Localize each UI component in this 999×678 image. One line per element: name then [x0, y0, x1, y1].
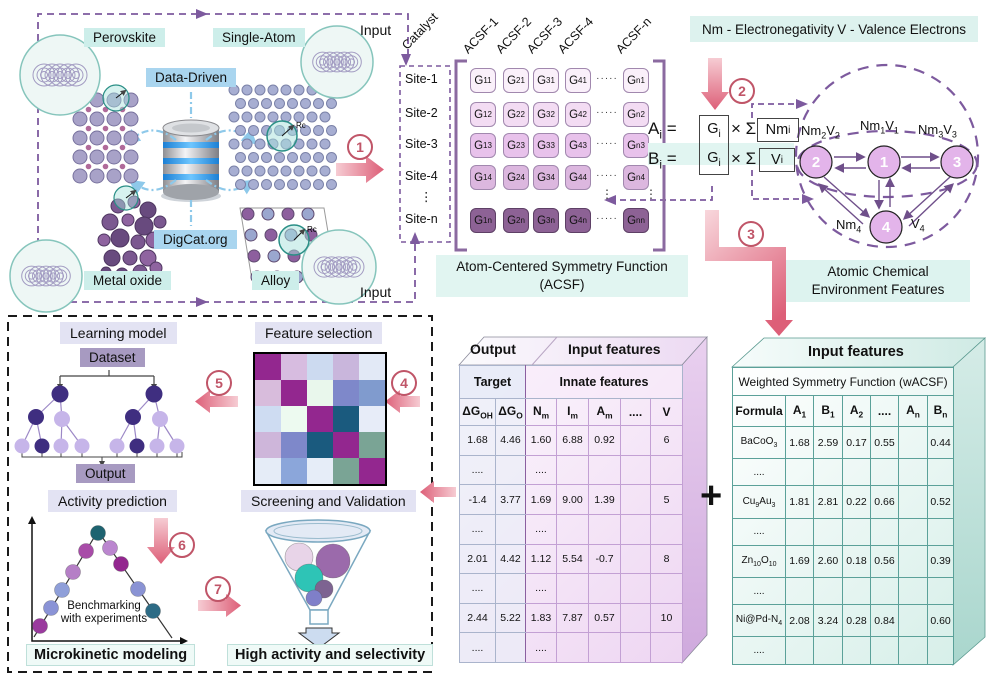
heatmap-cell [307, 406, 333, 432]
heatmap-cell [255, 380, 281, 406]
table-cell [557, 455, 589, 485]
table-cell [899, 637, 928, 665]
table-cell: 6 [651, 426, 683, 456]
atom [327, 99, 337, 109]
table-cell: .... [526, 455, 557, 485]
atom [255, 139, 265, 149]
col-header-cell: V [651, 399, 683, 426]
screening-header: Screening and Validation [241, 490, 416, 512]
matrix-cell: G2n [503, 208, 529, 233]
table-cell [589, 455, 621, 485]
table-group-row: Weighted Symmetry Function (wACSF) [733, 368, 954, 396]
atom [236, 153, 246, 163]
matrix-row-ellipsis: ····· [592, 73, 622, 84]
rc-label: Rc [307, 225, 317, 234]
atom [249, 153, 259, 163]
matrix-cell: G13 [470, 133, 496, 158]
table-cell: 1.12 [526, 544, 557, 574]
dataset-box: Dataset [80, 348, 145, 367]
wacsf-table-header: Input features [808, 344, 904, 360]
col-header-cell: .... [871, 396, 899, 427]
atom [104, 250, 120, 266]
atom [98, 234, 110, 246]
feature-heatmap [253, 352, 387, 486]
table-cell: 7.87 [557, 603, 589, 633]
site-row-label: Site-3 [405, 137, 438, 151]
atom [314, 99, 324, 109]
atom [282, 208, 294, 220]
atom [249, 126, 259, 136]
table-cell: 5.22 [496, 603, 526, 633]
col-header-cell: Im [557, 399, 589, 426]
heatmap-cell [333, 406, 359, 432]
table-cell: .... [460, 574, 496, 604]
table-row: ........ [460, 514, 683, 544]
data-dot [114, 557, 129, 572]
atom [90, 169, 104, 183]
table-row: ........ [460, 574, 683, 604]
atom [120, 145, 126, 151]
table-row: .... [733, 459, 954, 486]
graph-caption: Atomic Chemical Environment Features [786, 260, 970, 302]
step-7-badge: 7 [205, 576, 231, 602]
mid-table-input-header: Input features [568, 341, 661, 357]
table-cell: 2.81 [814, 486, 843, 518]
table-cell [843, 637, 871, 665]
atom [281, 85, 291, 95]
atom [20, 35, 100, 115]
benchmarking-line1: Benchmarking [56, 600, 152, 613]
atom [135, 217, 153, 235]
atom [320, 139, 330, 149]
atom [268, 112, 278, 122]
atom [140, 202, 156, 218]
table-cell [928, 459, 954, 486]
table-cell: 0.52 [928, 486, 954, 518]
table-cell [871, 518, 899, 545]
site-row-label: Site-n [405, 212, 438, 226]
innate-features-table: Target Innate features ΔGOHΔGONmImAm....… [459, 365, 683, 663]
graph-caption-line1: Atomic Chemical [786, 263, 970, 281]
atom [268, 166, 278, 176]
col-header-cell: ΔGOH [460, 399, 496, 426]
atom [307, 166, 317, 176]
data-dot [55, 583, 70, 598]
atom [73, 169, 87, 183]
matrix-cell: G21 [503, 68, 529, 93]
table-row: 2.014.421.125.54-0.78 [460, 544, 683, 574]
table-cell [621, 603, 651, 633]
table-group-row: Target Innate features [460, 366, 683, 399]
feature-selection-header: Feature selection [255, 322, 382, 344]
atom [229, 112, 239, 122]
graph-label-node2: Nm2V2 [801, 123, 840, 141]
col-header-cell: Bn [928, 396, 954, 427]
matrix-cell: Gn2 [623, 102, 649, 127]
table-cell: Zn10O10 [733, 545, 786, 577]
table-cell [651, 574, 683, 604]
atom [262, 153, 272, 163]
heatmap-cell [333, 458, 359, 484]
equation-g-box: Gi Gi [699, 115, 729, 175]
atom [107, 169, 121, 183]
atom [288, 153, 298, 163]
table-cell [843, 518, 871, 545]
table-cell [814, 459, 843, 486]
node-label: 3 [953, 154, 961, 171]
step-6-badge: 6 [169, 532, 195, 558]
activity-prediction-header: Activity prediction [48, 490, 177, 512]
atom [242, 85, 252, 95]
atom [73, 150, 87, 164]
table-cell: 1.68 [460, 426, 496, 456]
matrix-cell: Gn4 [623, 165, 649, 190]
learning-model-header: Learning model [60, 322, 177, 344]
atom [102, 214, 118, 230]
atom [301, 153, 311, 163]
matrix-cell: G12 [470, 102, 496, 127]
atom [90, 131, 104, 145]
atom [268, 85, 278, 95]
atom [124, 112, 138, 126]
benchmarking-line2: with experiments [56, 613, 152, 626]
matrix-ellipsis: ⋮ [601, 187, 613, 201]
table-cell: .... [526, 514, 557, 544]
atom [103, 164, 109, 170]
step-4-badge: 4 [391, 370, 417, 396]
acsf-caption: Atom-Centered Symmetry Function (ACSF) [436, 255, 688, 297]
innate-group-header: Innate features [526, 366, 683, 399]
table-row: .... [733, 518, 954, 545]
equation-a-operator: × Σ [731, 119, 756, 139]
atom [255, 112, 265, 122]
table-cell: 0.55 [871, 427, 899, 459]
matrix-cell: G24 [503, 165, 529, 190]
col-header-cell: ΔGO [496, 399, 526, 426]
heatmap-cell [281, 432, 307, 458]
table-cell [786, 637, 814, 665]
table-cell: 1.60 [526, 426, 557, 456]
matrix-cell: G43 [565, 133, 591, 158]
atom [229, 139, 239, 149]
atom [154, 216, 166, 228]
atom [248, 250, 260, 262]
table-cell: 0.57 [589, 603, 621, 633]
table-cell: 2.60 [814, 545, 843, 577]
step-1-badge: 1 [347, 134, 373, 160]
atom [86, 145, 92, 151]
mid-table-output-header: Output [470, 341, 516, 357]
label-perovskite: Perovskite [84, 28, 165, 47]
col-header-cell: B1 [814, 396, 843, 427]
col-header-cell: A1 [786, 396, 814, 427]
atom [236, 99, 246, 109]
table-cell: .... [733, 459, 786, 486]
node-label: 1 [880, 154, 888, 171]
atom [275, 180, 285, 190]
matrix-cell: G41 [565, 68, 591, 93]
matrix-ellipsis: ⋮ [645, 187, 657, 201]
node-label: 4 [882, 219, 891, 236]
table-row: Cu9Au31.812.810.220.660.52 [733, 486, 954, 518]
plus-operator: + [700, 477, 722, 515]
matrix-row-ellipsis: ····· [592, 170, 622, 181]
table-cell [843, 459, 871, 486]
atom [314, 126, 324, 136]
table-cell: 0.84 [871, 605, 899, 637]
atom [294, 85, 304, 95]
heatmap-cell [333, 380, 359, 406]
table-cell [899, 578, 928, 605]
table-cell: 2.44 [460, 603, 496, 633]
table-cell [621, 574, 651, 604]
table-cell [496, 633, 526, 663]
table-cell [899, 427, 928, 459]
table-cell: 0.66 [871, 486, 899, 518]
atom [107, 150, 121, 164]
col-header-cell: .... [621, 399, 651, 426]
col-header-cell: Am [589, 399, 621, 426]
table-cell: 3.24 [814, 605, 843, 637]
table-cell: Cu9Au3 [733, 486, 786, 518]
benchmarking-note: Benchmarking with experiments [56, 600, 152, 626]
matrix-cell: G22 [503, 102, 529, 127]
input-label-top: Input [360, 22, 391, 38]
atom [73, 112, 87, 126]
heatmap-cell [333, 354, 359, 380]
matrix-cell: G14 [470, 165, 496, 190]
table-cell: 1.81 [786, 486, 814, 518]
g-term: Gi [707, 150, 721, 169]
heatmap-cell [333, 432, 359, 458]
arrow-table-to-workflow [420, 481, 456, 503]
matrix-cell: G44 [565, 165, 591, 190]
equation-v-box: Vi [759, 148, 795, 172]
atom [73, 131, 87, 145]
atom [236, 126, 246, 136]
matrix-cell: Gn3 [623, 133, 649, 158]
table-cell: 9.00 [557, 485, 589, 515]
table-cell [496, 574, 526, 604]
graph-caption-line2: Environment Features [786, 281, 970, 299]
atom [107, 112, 121, 126]
table-cell [557, 574, 589, 604]
table-cell [928, 578, 954, 605]
decision-tree [15, 370, 185, 467]
data-dot [79, 544, 94, 559]
table-cell: .... [733, 637, 786, 665]
table-cell: -1.4 [460, 485, 496, 515]
high-activity-label: High activity and selectivity [227, 644, 433, 666]
table-row: -1.43.771.699.001.395 [460, 485, 683, 515]
atom [281, 166, 291, 176]
atom [120, 164, 126, 170]
atom [86, 164, 92, 170]
table-cell [814, 637, 843, 665]
arrow-step1 [336, 156, 384, 183]
matrix-cell: G34 [533, 165, 559, 190]
col-header-cell: Nm [526, 399, 557, 426]
site-ellipsis: ⋮ [420, 189, 433, 204]
data-dot [103, 541, 118, 556]
heatmap-cell [307, 354, 333, 380]
table-row: ........ [460, 633, 683, 663]
graph-label-node4-v: V4 [911, 216, 925, 234]
atom [275, 153, 285, 163]
atom [307, 112, 317, 122]
table-cell [871, 637, 899, 665]
table-cell [899, 605, 928, 637]
atom [320, 112, 330, 122]
atom [242, 166, 252, 176]
heatmap-cell [359, 406, 385, 432]
atom [124, 131, 138, 145]
table-row: .... [733, 637, 954, 665]
table-cell: 5.54 [557, 544, 589, 574]
atom [107, 131, 121, 145]
matrix-cell: G11 [470, 68, 496, 93]
label-digcat[interactable]: DigCat.org [154, 230, 237, 249]
atom [275, 99, 285, 109]
table-cell [589, 514, 621, 544]
table-row: 1.684.461.606.880.926 [460, 426, 683, 456]
table-cell [621, 426, 651, 456]
table-cell [899, 486, 928, 518]
table-col-headers: FormulaA1B1A2....AnBn [733, 396, 954, 427]
heatmap-cell [359, 432, 385, 458]
matrix-row-ellipsis: ····· [592, 107, 622, 118]
table-cell [589, 633, 621, 663]
atom [314, 180, 324, 190]
matrix-row-ellipsis: ····· [592, 138, 622, 149]
matrix-cell: G31 [533, 68, 559, 93]
step-5-badge: 5 [206, 370, 232, 396]
table-cell: 10 [651, 603, 683, 633]
atom [255, 85, 265, 95]
heatmap-cell [359, 354, 385, 380]
table-cell: 0.39 [928, 545, 954, 577]
table-col-headers: ΔGOHΔGONmImAm....V [460, 399, 683, 426]
equation-nm-box: Nmi [757, 118, 799, 142]
col-header-cell: Formula [733, 396, 786, 427]
equation-b-operator: × Σ [731, 149, 756, 169]
heatmap-cell [281, 380, 307, 406]
target-group-header: Target [460, 366, 526, 399]
heatmap-cell [307, 458, 333, 484]
table-cell [871, 459, 899, 486]
table-cell: 8 [651, 544, 683, 574]
data-dot [91, 526, 106, 541]
table-cell [651, 455, 683, 485]
table-row: 2.445.221.837.870.5710 [460, 603, 683, 633]
microkinetic-label: Microkinetic modeling [26, 644, 195, 666]
matrix-cell: G1n [470, 208, 496, 233]
wacsf-table: Weighted Symmetry Function (wACSF) Formu… [732, 367, 954, 665]
table-cell: 4.42 [496, 544, 526, 574]
table-cell: .... [733, 578, 786, 605]
matrix-cell: Gnn [623, 208, 649, 233]
atom [262, 99, 272, 109]
atom [262, 208, 274, 220]
arrow-step2 [701, 58, 729, 110]
label-single-atom: Single-Atom [213, 28, 305, 47]
matrix-cell: G4n [565, 208, 591, 233]
database-icon [161, 120, 221, 202]
heatmap-cell [307, 432, 333, 458]
step-3-badge: 3 [738, 221, 764, 247]
atom [288, 180, 298, 190]
atom [229, 166, 239, 176]
table-cell: 1.39 [589, 485, 621, 515]
matrix-cell: G33 [533, 133, 559, 158]
atom [301, 99, 311, 109]
matrix-row-ellipsis: ····· [592, 213, 622, 224]
table-cell [621, 455, 651, 485]
environment-graph: 2 1 3 4 [800, 146, 973, 243]
table-cell: 3.77 [496, 485, 526, 515]
heatmap-cell [255, 406, 281, 432]
acsf-caption-line1: Atom-Centered Symmetry Function [436, 258, 688, 276]
atom [327, 126, 337, 136]
table-cell: 0.18 [843, 545, 871, 577]
atom [320, 166, 330, 176]
atom [242, 139, 252, 149]
table-cell: -0.7 [589, 544, 621, 574]
input-label-bottom: Input [360, 284, 391, 300]
funnel [266, 520, 370, 648]
table-cell: BaCoO3 [733, 427, 786, 459]
matrix-cell: G23 [503, 133, 529, 158]
site-row-label: Site-4 [405, 169, 438, 183]
table-cell [814, 518, 843, 545]
table-cell: 2.01 [460, 544, 496, 574]
atom [90, 150, 104, 164]
atom [249, 180, 259, 190]
table-cell: 0.60 [928, 605, 954, 637]
table-cell: .... [526, 574, 557, 604]
atom [103, 126, 109, 132]
table-cell [651, 514, 683, 544]
table-cell [621, 633, 651, 663]
heatmap-cell [255, 458, 281, 484]
table-cell: 0.28 [843, 605, 871, 637]
atom [268, 250, 280, 262]
table-row: Ni@Pd-N42.083.240.280.840.60 [733, 605, 954, 637]
atom [302, 208, 314, 220]
table-cell [496, 455, 526, 485]
heatmap-cell [307, 380, 333, 406]
figure-root: Rc Rc 2 1 3 [0, 0, 999, 678]
atom [122, 214, 134, 226]
step-2-badge: 2 [729, 78, 755, 104]
table-cell: 0.44 [928, 427, 954, 459]
table-cell [843, 578, 871, 605]
matrix-cell: G32 [533, 102, 559, 127]
table-cell: Ni@Pd-N4 [733, 605, 786, 637]
atom [327, 153, 337, 163]
table-cell [899, 518, 928, 545]
table-cell [621, 485, 651, 515]
table-cell [899, 459, 928, 486]
heatmap-cell [281, 406, 307, 432]
atom [255, 166, 265, 176]
atom [265, 229, 277, 241]
data-dot [306, 590, 322, 606]
table-cell: 1.83 [526, 603, 557, 633]
heatmap-cell [281, 354, 307, 380]
wacsf-group-header: Weighted Symmetry Function (wACSF) [733, 368, 954, 396]
table-cell: 1.69 [786, 545, 814, 577]
